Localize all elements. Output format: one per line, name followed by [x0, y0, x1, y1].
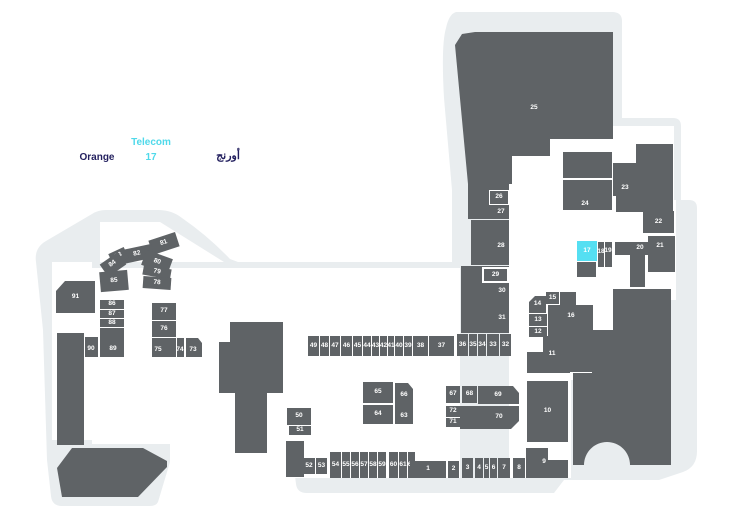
- unit-label: 63: [400, 413, 407, 420]
- unit-label: 38: [417, 343, 424, 350]
- unit-label: 47: [331, 343, 338, 350]
- unit-label: 79: [153, 268, 161, 276]
- store-name-arabic: أورنج: [208, 149, 248, 162]
- unit-label: 87: [108, 311, 115, 318]
- unit-label: 24: [581, 201, 588, 208]
- map-unit-68[interactable]: 68: [462, 386, 477, 403]
- map-unit-88[interactable]: 88: [100, 319, 124, 327]
- unit-label: 35: [469, 342, 476, 349]
- unit-label: 86: [108, 301, 115, 308]
- unit-label: 27: [497, 209, 504, 216]
- unit-label: 58: [369, 462, 376, 469]
- unit-label: 82: [133, 250, 141, 258]
- map-unit-6[interactable]: 6: [490, 458, 497, 478]
- map-unit-31[interactable]: 31: [461, 300, 509, 333]
- map-unit-75[interactable]: 75: [152, 338, 176, 357]
- unit-label: 19: [604, 248, 611, 255]
- unit-label: 48: [321, 343, 328, 350]
- map-unit-48[interactable]: 48: [320, 336, 329, 356]
- unit-label: 41: [387, 343, 394, 350]
- unit-label: 4: [477, 465, 481, 472]
- map-unit-72[interactable]: 72: [446, 406, 460, 417]
- map-unit-63[interactable]: 63: [395, 408, 413, 424]
- unit-label: 52: [305, 463, 312, 470]
- unit-label: 55: [342, 462, 349, 469]
- unit-label: 34: [478, 342, 485, 349]
- unit-label: 11: [549, 351, 556, 358]
- map-unit-41[interactable]: 41: [388, 336, 394, 356]
- map-unit-34[interactable]: 34: [478, 334, 486, 356]
- map-unit-12[interactable]: 12: [529, 327, 547, 337]
- structure-block: [563, 152, 612, 178]
- map-unit-91[interactable]: 91: [56, 281, 95, 313]
- map-unit-89[interactable]: 89: [100, 328, 124, 357]
- unit-label: 54: [332, 462, 339, 469]
- unit-label: 69: [494, 392, 501, 399]
- unit-label: 25: [530, 105, 537, 112]
- unit-label: 67: [449, 391, 456, 398]
- map-unit-86[interactable]: 86: [100, 300, 124, 309]
- unit-label: 90: [87, 346, 94, 353]
- unit-label: 80: [152, 258, 161, 267]
- unit-label: 15: [549, 295, 556, 302]
- unit-label: 28: [497, 243, 504, 250]
- unit-label: 53: [318, 463, 325, 470]
- map-unit-24[interactable]: 24: [563, 180, 612, 210]
- map-unit-59[interactable]: 59: [378, 452, 386, 478]
- map-unit-20[interactable]: 20: [615, 242, 648, 255]
- map-unit-66[interactable]: 66: [395, 383, 413, 408]
- map-unit-47[interactable]: 47: [330, 336, 340, 356]
- store-category-label: Telecom: [125, 137, 177, 148]
- map-unit-13[interactable]: 13: [529, 314, 547, 326]
- unit-label: 45: [354, 343, 361, 350]
- map-unit-74[interactable]: 74: [177, 338, 184, 357]
- map-unit-44[interactable]: 44: [363, 336, 371, 356]
- unit-label: 60: [390, 462, 397, 469]
- unit-label: 33: [489, 342, 496, 349]
- unit-label: 14: [534, 301, 541, 308]
- map-unit-54[interactable]: 54: [330, 452, 341, 478]
- unit-label: 26: [495, 194, 502, 201]
- unit-label: 5: [485, 465, 489, 472]
- structure-block: [577, 262, 596, 277]
- map-unit-27[interactable]: 27: [472, 206, 509, 219]
- unit-label: 49: [310, 343, 317, 350]
- unit-label: 29: [492, 272, 499, 279]
- map-unit-90[interactable]: 90: [85, 337, 98, 357]
- map-unit-76[interactable]: 76: [152, 321, 176, 337]
- map-unit-19[interactable]: 19: [605, 242, 612, 267]
- map-unit-43[interactable]: 43: [372, 336, 379, 356]
- map-unit-32[interactable]: 32: [500, 334, 511, 356]
- unit-label: 22: [655, 219, 662, 226]
- map-unit-50[interactable]: 50: [287, 408, 311, 425]
- unit-label: 56: [351, 462, 358, 469]
- map-unit-15[interactable]: 15: [545, 291, 560, 305]
- map-unit-56[interactable]: 56: [351, 452, 359, 478]
- unit-label: 9: [542, 459, 546, 466]
- unit-label: 18: [597, 249, 604, 256]
- unit-label: 1: [426, 466, 430, 473]
- store-name-english: Orange: [72, 152, 122, 163]
- map-unit-45[interactable]: 45: [353, 336, 362, 356]
- map-unit-28[interactable]: 28: [471, 220, 509, 265]
- unit-label: 50: [295, 413, 302, 420]
- unit-label: 72: [449, 408, 456, 415]
- store-unit-number: 17: [125, 152, 177, 163]
- unit-label: 23: [621, 185, 628, 192]
- map-unit-10[interactable]: 10: [527, 381, 568, 442]
- map-unit-70[interactable]: 70: [460, 406, 519, 429]
- unit-label: 36: [459, 342, 466, 349]
- units-layer: 2526272830293124232221201718191514131216…: [0, 0, 750, 531]
- map-unit-21[interactable]: 21: [648, 236, 675, 272]
- map-unit-73[interactable]: 73: [186, 338, 202, 357]
- unit-label: 88: [108, 320, 115, 327]
- unit-label: 39: [404, 343, 411, 350]
- map-unit-39[interactable]: 39: [404, 336, 412, 356]
- unit-label: 31: [498, 315, 505, 322]
- unit-label: 37: [438, 343, 445, 350]
- unit-label: 91: [72, 294, 79, 301]
- map-unit-42[interactable]: 42: [380, 336, 387, 356]
- unit-label: 75: [154, 347, 161, 354]
- map-unit-67[interactable]: 67: [446, 386, 460, 403]
- map-unit-60[interactable]: 60: [389, 452, 398, 478]
- map-unit-8[interactable]: 8: [513, 458, 525, 478]
- unit-label: 21: [656, 243, 663, 250]
- map-unit-64[interactable]: 64: [363, 405, 393, 424]
- unit-label: 71: [449, 419, 456, 426]
- map-unit-35[interactable]: 35: [469, 334, 477, 356]
- unit-label: 3: [466, 465, 470, 472]
- unit-label: 12: [534, 329, 541, 336]
- unit-label: 43: [372, 343, 379, 350]
- unit-label: 10: [544, 408, 551, 415]
- unit-label: 77: [160, 308, 167, 315]
- map-unit-18[interactable]: 18: [598, 242, 604, 267]
- map-unit-55[interactable]: 55: [342, 452, 350, 478]
- map-unit-26[interactable]: 26: [489, 190, 509, 205]
- unit-label: 65: [374, 389, 381, 396]
- unit-label: 2: [452, 466, 456, 473]
- unit-label: 42: [380, 343, 387, 350]
- unit-label: 64: [374, 411, 381, 418]
- map-unit-22[interactable]: 22: [643, 211, 674, 233]
- map-unit-29[interactable]: 29: [482, 267, 509, 283]
- unit-label: 44: [363, 343, 370, 350]
- structure-block: [57, 333, 84, 445]
- map-unit-40[interactable]: 40: [395, 336, 403, 356]
- map-unit-9[interactable]: 9: [526, 440, 568, 478]
- unit-label: 61: [399, 462, 406, 469]
- map-unit-37[interactable]: 37: [429, 336, 454, 356]
- map-unit-11[interactable]: 11: [527, 336, 570, 373]
- map-unit-4[interactable]: 4: [475, 458, 483, 478]
- map-unit-61[interactable]: 61: [399, 452, 407, 478]
- unit-label: 32: [502, 342, 509, 349]
- map-unit-69[interactable]: 69: [478, 386, 519, 404]
- map-unit-85[interactable]: 85: [99, 270, 129, 292]
- map-unit-53[interactable]: 53: [316, 458, 327, 474]
- unit-label: 6: [492, 465, 496, 472]
- unit-label: 7: [502, 465, 506, 472]
- map-unit-7[interactable]: 7: [498, 458, 510, 478]
- unit-label: 51: [296, 427, 303, 434]
- map-unit-65[interactable]: 65: [363, 382, 393, 403]
- unit-label: 76: [160, 326, 167, 333]
- unit-label: 13: [534, 317, 541, 324]
- structure-block: [630, 255, 645, 287]
- unit-label: 66: [400, 392, 407, 399]
- map-unit-33[interactable]: 33: [487, 334, 499, 356]
- map-unit-77[interactable]: 77: [152, 303, 176, 320]
- map-unit-3[interactable]: 3: [462, 458, 473, 478]
- mall-floor-plan: 2526272830293124232221201718191514131216…: [0, 0, 750, 531]
- map-unit-23[interactable]: 23: [613, 144, 673, 212]
- map-unit-71[interactable]: 71: [446, 418, 460, 427]
- unit-label: 74: [176, 347, 183, 354]
- map-unit-57[interactable]: 57: [360, 452, 368, 478]
- unit-label: 8: [517, 465, 521, 472]
- map-unit-38[interactable]: 38: [413, 336, 428, 356]
- unit-label: 40: [395, 343, 402, 350]
- map-unit-1[interactable]: 1: [410, 461, 446, 478]
- unit-label: 85: [110, 277, 118, 284]
- map-unit-2[interactable]: 2: [448, 461, 459, 478]
- unit-label: 30: [498, 288, 505, 295]
- unit-label: 78: [153, 280, 161, 287]
- map-unit-49[interactable]: 49: [308, 336, 319, 356]
- unit-label: 20: [636, 245, 643, 252]
- map-unit-58[interactable]: 58: [369, 452, 377, 478]
- unit-label: 89: [109, 346, 116, 353]
- unit-label: 17: [583, 248, 590, 255]
- unit-label: 84: [108, 260, 118, 269]
- map-unit-87[interactable]: 87: [100, 310, 124, 318]
- map-unit-52[interactable]: 52: [303, 458, 315, 474]
- unit-label: 68: [466, 391, 473, 398]
- unit-label: 59: [378, 462, 385, 469]
- unit-label: 46: [343, 343, 350, 350]
- map-unit-46[interactable]: 46: [341, 336, 352, 356]
- unit-label: 70: [495, 414, 502, 421]
- structure-block: [286, 441, 304, 477]
- map-unit-51[interactable]: 51: [289, 426, 311, 435]
- unit-label: 81: [160, 239, 169, 247]
- map-unit-5[interactable]: 5: [484, 458, 489, 478]
- unit-label: 73: [189, 347, 196, 354]
- unit-label: 57: [360, 462, 367, 469]
- map-unit-78[interactable]: 78: [143, 276, 172, 290]
- map-unit-17-highlighted[interactable]: 17: [577, 241, 597, 261]
- map-unit-14[interactable]: 14: [529, 296, 546, 313]
- map-unit-36[interactable]: 36: [457, 334, 468, 356]
- unit-label: 16: [567, 313, 574, 320]
